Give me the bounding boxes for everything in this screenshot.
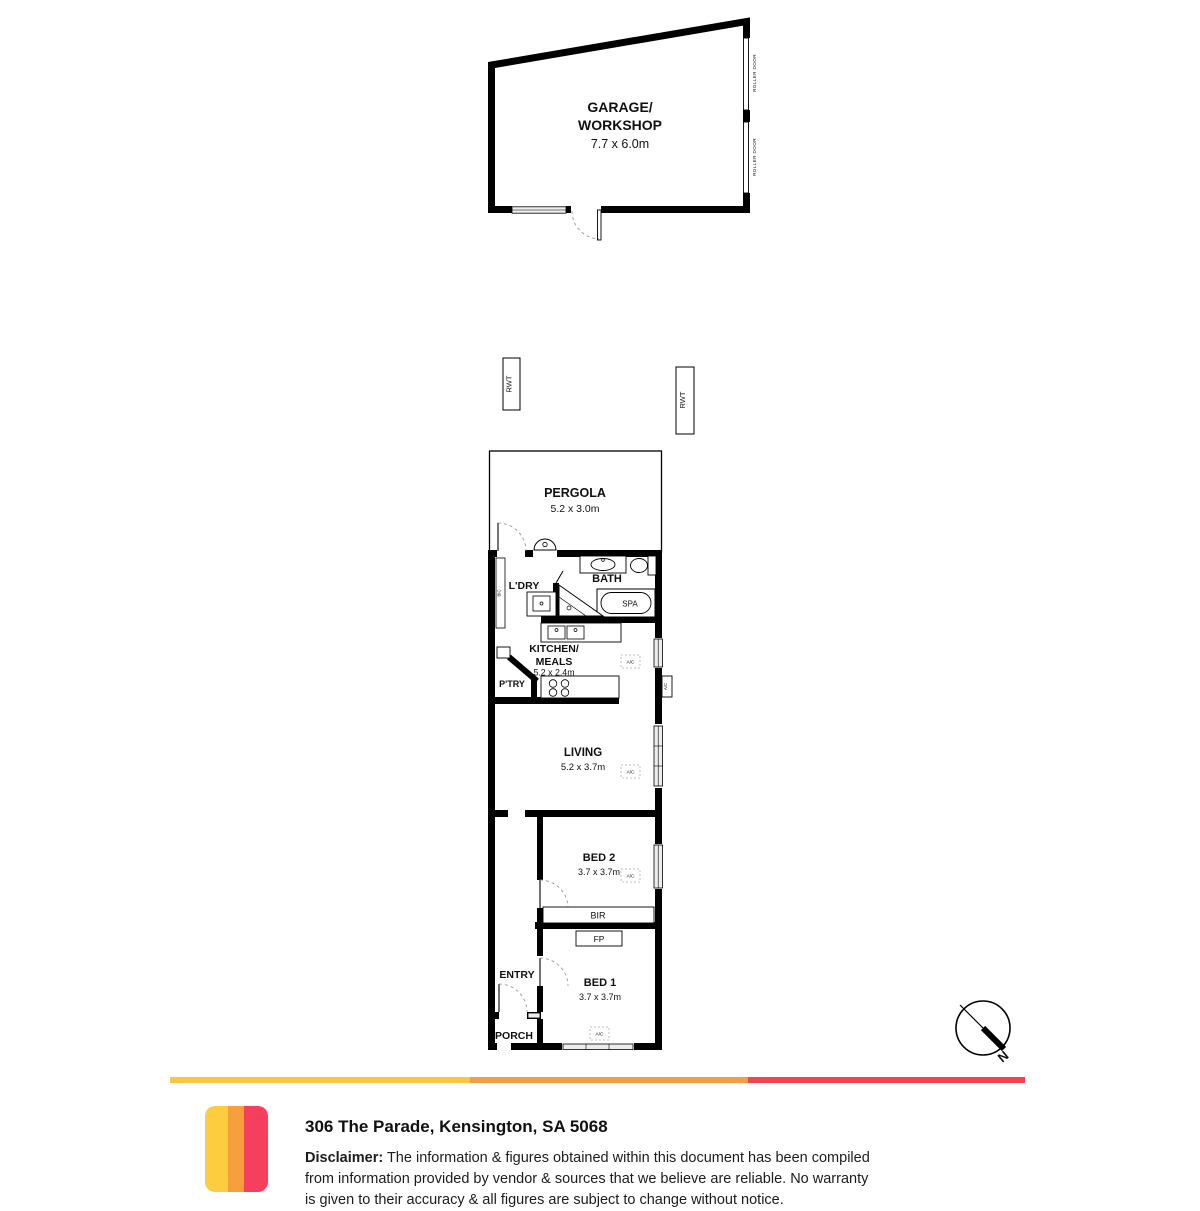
- disclaimer-text: Disclaimer: The information & figures ob…: [305, 1148, 925, 1211]
- built-in-robe: BIR: [543, 907, 654, 923]
- bir-label: BIR: [590, 911, 606, 921]
- floorplan-page: { "floorplan": { "garage": { "name1": "G…: [0, 0, 1200, 1200]
- porch-label: PORCH: [495, 1030, 533, 1042]
- bar-segment-yellow: [170, 1077, 470, 1083]
- bic-label: BIC: [497, 589, 502, 596]
- roller-door-2: [744, 122, 749, 193]
- entry-sidelight-window: [528, 1013, 540, 1018]
- garage-label-1: GARAGE/: [587, 99, 652, 115]
- disclaimer-line-3: is given to their accuracy & all figures…: [305, 1190, 925, 1211]
- disclaimer-line-2: from information provided by vendor & so…: [305, 1169, 925, 1190]
- fixtures: BIC SPA: [496, 539, 672, 1040]
- ac-label-kitchen: A/C: [627, 660, 636, 666]
- entry-label: ENTRY: [499, 969, 534, 981]
- bed2-dims: 3.7 x 3.7m: [578, 867, 620, 877]
- garage-door-opening: [571, 206, 601, 214]
- ac-label-external: A/C: [663, 683, 668, 690]
- bath-door-marker: [556, 571, 563, 583]
- bed1-dims: 3.7 x 3.7m: [579, 992, 621, 1002]
- disclaimer-label: Disclaimer:: [305, 1150, 383, 1166]
- vanity-basin: [580, 556, 626, 573]
- compass: N: [956, 1001, 1012, 1065]
- spa-bath: SPA: [597, 589, 655, 617]
- room-labels: L'DRY BATH KITCHEN/ MEALS 5.2 x 2.4m P'T…: [495, 573, 622, 1042]
- roller-door-label-1: ROLLER DOOR: [752, 54, 757, 92]
- footer-accent-bar: [170, 1077, 1025, 1083]
- cooktop: [541, 676, 619, 698]
- bath-label: BATH: [592, 573, 622, 585]
- agency-logo: [205, 1106, 268, 1192]
- logo-stripe-yellow: [205, 1106, 228, 1192]
- rwt-right-label: RWT: [678, 391, 687, 408]
- floor-plan-svg: GARAGE/ WORKSHOP 7.7 x 6.0m ROLLER DOOR …: [0, 0, 1200, 1075]
- rwt-left-label: RWT: [505, 375, 514, 392]
- garage-door-leaf: [598, 210, 602, 240]
- kitchen-label-2: MEALS: [536, 656, 573, 668]
- bar-segment-red: [748, 1077, 1025, 1083]
- spa-label: SPA: [622, 600, 638, 609]
- bed1-label: BED 1: [584, 977, 616, 989]
- kitchen-sink: [541, 623, 621, 642]
- ac-label-living: A/C: [627, 770, 636, 776]
- property-address: 306 The Parade, Kensington, SA 5068: [305, 1117, 608, 1137]
- ac-label-bed2: A/C: [627, 874, 636, 880]
- garage-label-2: WORKSHOP: [578, 117, 662, 133]
- bed1-door-swing: [540, 958, 568, 986]
- bed1-window: [563, 1044, 633, 1050]
- garage-outline: GARAGE/ WORKSHOP 7.7 x 6.0m ROLLER DOOR …: [492, 22, 758, 241]
- kitchen-label-1: KITCHEN/: [529, 643, 579, 655]
- living-label: LIVING: [564, 747, 602, 759]
- bed2-label: BED 2: [583, 852, 615, 864]
- garage-dims: 7.7 x 6.0m: [591, 137, 649, 151]
- kitchen-dims: 5.2 x 2.4m: [533, 668, 574, 678]
- laundry-label: L'DRY: [509, 580, 540, 592]
- roller-door-1: [744, 38, 749, 110]
- shower: [559, 585, 603, 616]
- laundry-trough: [527, 592, 556, 616]
- roller-door-label-2: ROLLER DOOR: [752, 138, 757, 176]
- disclaimer-line-1: Disclaimer: The information & figures ob…: [305, 1148, 925, 1169]
- garage-walls: [492, 22, 747, 210]
- ac-label-bed1: A/C: [596, 1032, 605, 1038]
- pergola-outline: [490, 451, 662, 552]
- front-door-swing: [499, 984, 527, 1012]
- fireplace: FP: [576, 931, 622, 946]
- bar-segment-orange: [470, 1077, 748, 1083]
- living-dims: 5.2 x 3.7m: [561, 762, 605, 773]
- pergola-dims: 5.2 x 3.0m: [550, 503, 599, 515]
- logo-stripe-orange: [228, 1106, 244, 1192]
- rainwater-tanks: RWT RWT: [503, 358, 694, 434]
- logo-stripe-pink: [244, 1106, 268, 1192]
- fp-label: FP: [594, 934, 605, 944]
- toilet: [631, 556, 657, 575]
- garage-door-swing: [572, 211, 599, 239]
- pantry-cupboard: [497, 647, 510, 658]
- bed2-door-swing: [540, 880, 568, 908]
- pergola: PERGOLA 5.2 x 3.0m: [490, 451, 662, 552]
- pergola-label: PERGOLA: [544, 486, 606, 500]
- pantry-label: P'TRY: [499, 679, 525, 689]
